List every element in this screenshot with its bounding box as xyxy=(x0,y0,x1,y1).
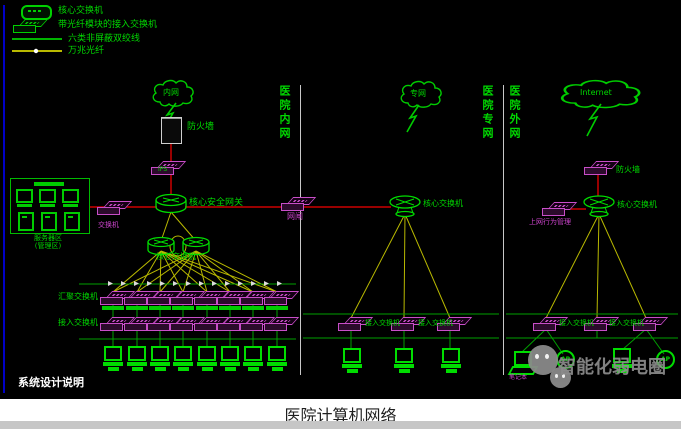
core-gateway-icon xyxy=(156,195,186,213)
firewall-icon xyxy=(161,117,182,144)
server-zone-label: 服务器区 (管理区) xyxy=(14,234,82,250)
external-core-switch-icon xyxy=(584,196,614,217)
server-monitor xyxy=(61,189,79,207)
cloud-intranet-label: 内网 xyxy=(163,88,179,97)
core-gateway-label: 核心安全网关 xyxy=(189,198,243,208)
fiber-patch xyxy=(266,306,288,310)
aggregation-switch xyxy=(264,291,292,304)
legend-fiber-label: 万兆光纤 xyxy=(68,46,104,56)
private-access-label-1: 接入交换机 xyxy=(365,319,400,327)
fiber-patch xyxy=(196,306,218,310)
behavior-mgmt-icon xyxy=(542,202,570,215)
private-workstation xyxy=(441,348,461,373)
fiber-patch xyxy=(149,306,171,310)
watermark-text: 智能化弱电圈 xyxy=(558,353,666,379)
server-switch-label: 交换机 xyxy=(98,221,119,229)
legend-fiber-dot xyxy=(34,49,38,53)
laptop-label: 笔记本 xyxy=(509,375,527,382)
legend-core-switch-icon xyxy=(21,5,52,20)
legend-cat6-label: 六类非屏蔽双绞线 xyxy=(68,34,140,44)
server-monitor xyxy=(38,189,56,207)
server-monitor xyxy=(15,189,33,207)
diagram-lines-layer xyxy=(0,0,681,399)
legend-access-switch-label: 带光纤模块的接入交换机 xyxy=(58,20,157,30)
zone-title-intranet: 医院内网 xyxy=(276,85,292,141)
aggregation-switch-label: 汇聚交换机 xyxy=(58,292,98,301)
fiber-patch xyxy=(172,306,194,310)
workstation xyxy=(197,346,217,371)
server-zone-bar xyxy=(34,182,64,186)
ips-label: IPS xyxy=(158,167,167,174)
firewall-label: 防火墙 xyxy=(187,122,214,132)
workstation xyxy=(220,346,240,371)
server-zone-label-line1: 服务器区 xyxy=(34,234,62,242)
server-tower xyxy=(64,212,80,231)
zone-title-private: 医院专网 xyxy=(479,85,495,141)
workstation xyxy=(150,346,170,371)
workstation xyxy=(127,346,147,371)
external-firewall-label: 防火墙 xyxy=(616,165,640,174)
private-access-switch xyxy=(338,317,366,330)
fiber-patch xyxy=(242,306,264,310)
fiber-patch xyxy=(126,306,148,310)
private-core-switch-label: 核心交换机 xyxy=(423,199,463,208)
bottom-gray-bar xyxy=(0,421,681,429)
behavior-mgmt-label: 上网行为管理 xyxy=(529,218,571,226)
external-firewall-icon xyxy=(584,161,612,174)
intranet-access-switch-label: 接入交换机 xyxy=(58,318,98,327)
zone-divider-1 xyxy=(300,85,301,375)
server-tower xyxy=(18,212,34,231)
server-zone-label-line2: (管理区) xyxy=(35,242,61,250)
design-note: 系统设计说明 xyxy=(18,377,84,390)
fiber-patch xyxy=(219,306,241,310)
screenshot-root: 核心交换机 带光纤模块的接入交换机 六类非屏蔽双绞线 万兆光纤 医院内网 医院专… xyxy=(0,0,681,429)
legend-core-switch-label: 核心交换机 xyxy=(58,6,103,16)
gatekeeper-label: 网闸 xyxy=(287,212,303,221)
workstation xyxy=(103,346,123,371)
private-access-label-2: 接入交换机 xyxy=(418,319,453,327)
cloud-private-label: 专网 xyxy=(410,89,426,98)
intranet-core-switch-label: 核心交换机 xyxy=(156,252,196,261)
workstation xyxy=(267,346,287,371)
server-switch-icon xyxy=(97,201,125,214)
external-core-switch-label: 核心交换机 xyxy=(617,200,657,209)
gatekeeper-switch-icon xyxy=(281,197,309,210)
external-access-label-1: 接入交换机 xyxy=(559,319,594,327)
private-workstation xyxy=(342,348,362,373)
workstation xyxy=(173,346,193,371)
fiber-patch xyxy=(102,306,124,310)
legend-access-switch-icon xyxy=(13,19,41,32)
workstation xyxy=(243,346,263,371)
lightning-bolts xyxy=(164,103,601,136)
external-access-label-2: 接入交换机 xyxy=(609,319,644,327)
private-core-switch-icon xyxy=(390,196,420,217)
zone-divider-2 xyxy=(503,85,504,375)
access-switch xyxy=(264,317,292,330)
zone-title-external: 医院外网 xyxy=(506,85,522,141)
external-access-switch xyxy=(533,317,561,330)
network-diagram-canvas: 核心交换机 带光纤模块的接入交换机 六类非屏蔽双绞线 万兆光纤 医院内网 医院专… xyxy=(0,0,681,399)
private-workstation xyxy=(394,348,414,373)
frame-left-line xyxy=(3,5,5,393)
server-tower xyxy=(41,212,57,231)
cloud-internet-label: Internet xyxy=(580,88,612,97)
